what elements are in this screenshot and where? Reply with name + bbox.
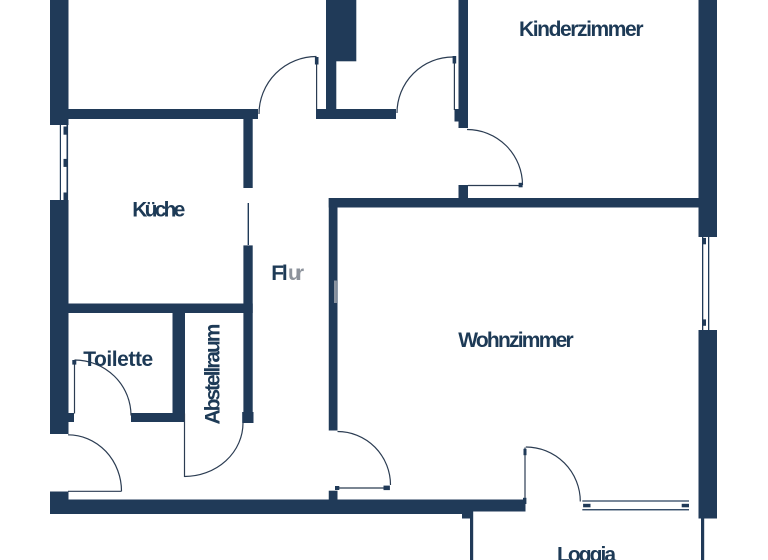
svg-text:Toilette: Toilette xyxy=(83,348,153,371)
svg-text:Kinderzimmer: Kinderzimmer xyxy=(519,18,644,41)
svg-text:ur: ur xyxy=(288,262,304,285)
svg-text:Loggia: Loggia xyxy=(557,544,616,560)
svg-text:Wohnzimmer: Wohnzimmer xyxy=(458,329,574,352)
svg-text:Fl: Fl xyxy=(271,262,288,285)
svg-text:Abstellraum: Abstellraum xyxy=(202,324,225,425)
svg-text:Küche: Küche xyxy=(132,199,185,222)
